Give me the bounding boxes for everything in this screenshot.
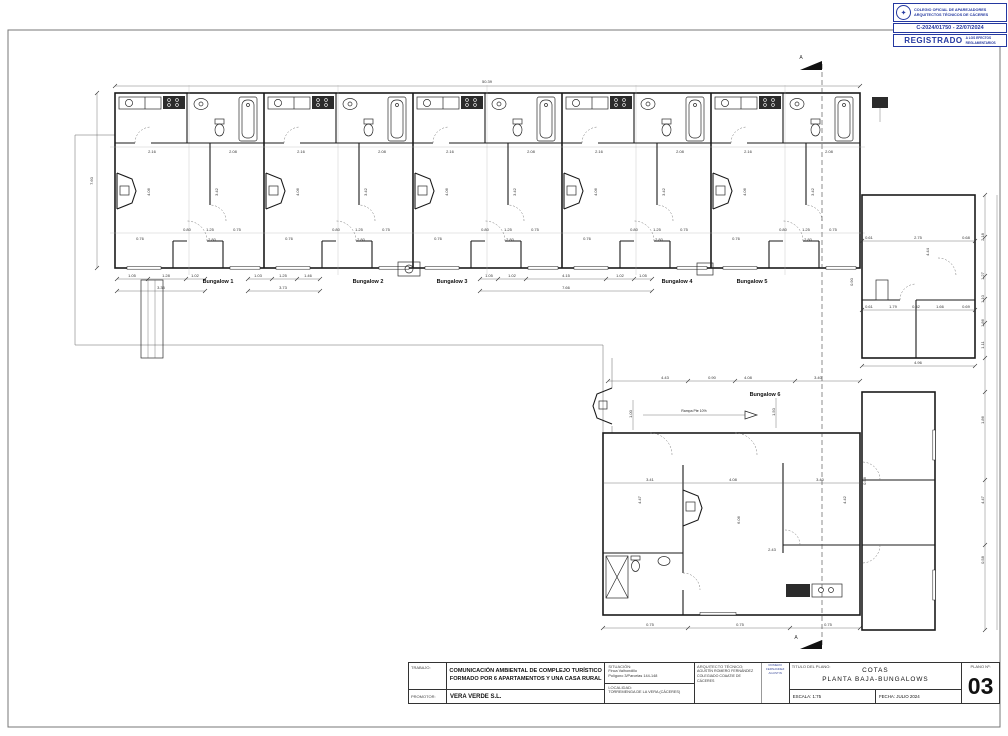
stamp-registry-number: C-2024/01750 - 22/07/2024 xyxy=(893,23,1007,33)
svg-text:1.02: 1.02 xyxy=(191,273,200,278)
svg-text:2.43: 2.43 xyxy=(768,547,777,552)
svg-text:4.43: 4.43 xyxy=(661,375,670,380)
section-letter-top: A xyxy=(799,55,803,61)
stamp-registered: REGISTRADO xyxy=(904,36,962,45)
svg-text:2.16: 2.16 xyxy=(595,149,604,154)
dim-label: 7.60 xyxy=(89,176,94,185)
svg-text:1.46: 1.46 xyxy=(304,273,313,278)
stamp-org-line1: COLEGIO OFICIAL DE APAREJADORES xyxy=(914,8,988,13)
project-title-line2: FORMADO POR 6 APARTAMENTOS Y UNA CASA RU… xyxy=(450,676,602,684)
svg-text:0.69: 0.69 xyxy=(962,304,971,309)
svg-text:0.80: 0.80 xyxy=(779,227,788,232)
svg-text:4.44: 4.44 xyxy=(925,247,930,256)
svg-text:0.58: 0.58 xyxy=(980,555,985,564)
promotor-label: PROMOTOR: xyxy=(411,694,436,699)
sheet-border xyxy=(8,30,1000,727)
svg-text:4.42: 4.42 xyxy=(842,495,847,504)
svg-text:1.10: 1.10 xyxy=(980,294,985,303)
firma-line3: AGUSTIN xyxy=(763,672,788,676)
college-crest-icon: ✦ xyxy=(896,5,911,20)
sheet-title-line1: COTAS xyxy=(862,667,889,676)
svg-text:0.80: 0.80 xyxy=(183,227,192,232)
situacion-line2: Polígono 3/Parcelas 144-148 xyxy=(608,674,691,679)
section-arrow-bottom xyxy=(800,640,822,649)
svg-text:0.68: 0.68 xyxy=(962,235,971,240)
svg-text:2.16: 2.16 xyxy=(744,149,753,154)
svg-text:1.79: 1.79 xyxy=(889,304,898,309)
svg-text:2.08: 2.08 xyxy=(229,149,238,154)
svg-text:0.76: 0.76 xyxy=(732,236,741,241)
arquitecto-line3: CÁCERES xyxy=(697,679,759,684)
bungalow-1-label: Bungalow 1 xyxy=(203,279,234,285)
svg-text:2.16: 2.16 xyxy=(297,149,306,154)
svg-text:0.76: 0.76 xyxy=(434,236,443,241)
titleblock-sheet-title: TITULO DEL PLANO: COTAS PLANTA BAJA-BUNG… xyxy=(790,663,962,703)
svg-text:2.08: 2.08 xyxy=(825,149,834,154)
svg-text:0.80: 0.80 xyxy=(630,227,639,232)
svg-text:2.80: 2.80 xyxy=(655,237,664,242)
sheet-title-line2: PLANTA BAJA-BUNGALOWS xyxy=(822,676,928,685)
titleblock-architect: ARQUITECTO TÉCNICO: AGUSTÍN ROMERO FERNÁ… xyxy=(695,663,790,703)
svg-text:1.00: 1.00 xyxy=(628,409,633,418)
svg-text:2.80: 2.80 xyxy=(506,237,515,242)
digital-signature: ROMERO FERNANDEZ AGUSTIN xyxy=(761,663,789,703)
row-dimension-chains: 1.05 1.28 1.02 3.35 1.03 1.25 1.46 3.73 … xyxy=(115,273,654,293)
svg-text:1.27: 1.27 xyxy=(980,271,985,280)
svg-text:3.42: 3.42 xyxy=(512,187,517,196)
section-line-a: A A xyxy=(794,55,822,649)
svg-text:1.05: 1.05 xyxy=(639,273,648,278)
bungalow-modules xyxy=(115,85,860,275)
bungalow-3-label: Bungalow 3 xyxy=(437,279,468,285)
svg-text:0.61: 0.61 xyxy=(865,304,874,309)
bungalow-6-label: Bungalow 6 xyxy=(750,392,781,398)
svg-text:1.05: 1.05 xyxy=(128,273,137,278)
svg-text:2.08: 2.08 xyxy=(378,149,387,154)
svg-text:1.50: 1.50 xyxy=(771,407,776,416)
utility-box xyxy=(872,97,888,108)
svg-text:0.75: 0.75 xyxy=(382,227,391,232)
svg-text:1.25: 1.25 xyxy=(355,227,364,232)
svg-text:3.35: 3.35 xyxy=(157,285,166,290)
svg-text:6.06: 6.06 xyxy=(736,515,741,524)
svg-text:2.80: 2.80 xyxy=(357,237,366,242)
svg-text:1.05: 1.05 xyxy=(485,273,494,278)
svg-text:1.86: 1.86 xyxy=(980,415,985,424)
right-dimension-chain: 2.18 1.27 1.10 1.86 1.11 1.86 4.47 0.58 xyxy=(980,193,997,632)
svg-text:4.08: 4.08 xyxy=(729,477,738,482)
svg-text:4.06: 4.06 xyxy=(295,187,300,196)
svg-text:0.75: 0.75 xyxy=(680,227,689,232)
svg-text:3.40: 3.40 xyxy=(816,477,825,482)
svg-text:3.42: 3.42 xyxy=(363,187,368,196)
titleblock-location: SITUACIÓN: Finca Valhondillo Polígono 3/… xyxy=(605,663,695,703)
svg-text:1.66: 1.66 xyxy=(936,304,945,309)
svg-text:3.40: 3.40 xyxy=(814,375,823,380)
svg-text:1.25: 1.25 xyxy=(279,273,288,278)
sheet-number: 03 xyxy=(968,669,994,703)
svg-text:0.75: 0.75 xyxy=(829,227,838,232)
svg-text:0.90: 0.90 xyxy=(708,375,717,380)
right-lower-building xyxy=(862,392,935,630)
svg-text:2.08: 2.08 xyxy=(527,149,536,154)
svg-text:1.86: 1.86 xyxy=(980,318,985,327)
promotor-name: VERA VERDE S.L. xyxy=(447,694,604,700)
svg-text:4.06: 4.06 xyxy=(444,187,449,196)
svg-text:2.80: 2.80 xyxy=(208,237,217,242)
site-outline xyxy=(75,135,612,433)
svg-text:0.75: 0.75 xyxy=(646,622,655,627)
svg-text:4.06: 4.06 xyxy=(146,187,151,196)
svg-text:2.75: 2.75 xyxy=(914,235,923,240)
bungalow-row-plan: 50.39 7.60 2.16 2.08 4.06 3.42 0.80 1.25 xyxy=(89,79,888,293)
svg-text:0.76: 0.76 xyxy=(136,236,145,241)
project-title-line1: COMUNICACIÓN AMBIENTAL DE COMPLEJO TURÍS… xyxy=(449,668,601,676)
svg-text:0.52: 0.52 xyxy=(912,304,921,309)
svg-text:7.66: 7.66 xyxy=(562,285,571,290)
right-upper-building: 0.61 2.75 0.68 4.44 0.61 1.79 0.52 1.66 … xyxy=(849,195,977,368)
svg-text:4.47: 4.47 xyxy=(980,495,985,504)
floor-plan-drawing: 50.39 7.60 2.16 2.08 4.06 3.42 0.80 1.25 xyxy=(0,0,1008,736)
svg-text:0.75: 0.75 xyxy=(233,227,242,232)
svg-text:4.06: 4.06 xyxy=(593,187,598,196)
svg-text:2.16: 2.16 xyxy=(148,149,157,154)
title-block: TRABAJO: COMUNICACIÓN AMBIENTAL DE COMPL… xyxy=(408,662,1000,704)
stamp-note-line2: REGLAMENTARIOS xyxy=(966,41,996,45)
svg-text:0.76: 0.76 xyxy=(583,236,592,241)
svg-text:4.96: 4.96 xyxy=(914,360,923,365)
bungalow-5-label: Bungalow 5 xyxy=(737,279,768,285)
svg-text:1.11: 1.11 xyxy=(980,340,985,348)
svg-text:0.75: 0.75 xyxy=(736,622,745,627)
svg-text:2.08: 2.08 xyxy=(676,149,685,154)
svg-text:2.80: 2.80 xyxy=(804,237,813,242)
svg-text:1.25: 1.25 xyxy=(653,227,662,232)
svg-text:1.03: 1.03 xyxy=(254,273,263,278)
bungalow-2-label: Bungalow 2 xyxy=(353,279,384,285)
localidad-value: TORREMENGA DE LA VERA (CÁCERES) xyxy=(608,690,691,695)
svg-text:2.16: 2.16 xyxy=(446,149,455,154)
bungalow-4-label: Bungalow 4 xyxy=(662,279,694,285)
svg-text:1.25: 1.25 xyxy=(802,227,811,232)
svg-text:3.42: 3.42 xyxy=(214,187,219,196)
titleblock-project: TRABAJO: COMUNICACIÓN AMBIENTAL DE COMPL… xyxy=(409,663,605,703)
svg-text:0.75: 0.75 xyxy=(824,622,833,627)
svg-text:1.28: 1.28 xyxy=(162,273,171,278)
dim-label: 50.39 xyxy=(482,79,493,84)
trabajo-label: TRABAJO: xyxy=(411,665,431,670)
bungalow-6-plan: Bungalow 6 Rampa Pte 10% 1.00 1.50 4.43 … xyxy=(601,375,867,630)
scale-value: ESCALA: 1:75 xyxy=(790,690,875,703)
svg-text:3.42: 3.42 xyxy=(810,187,815,196)
svg-text:2.18: 2.18 xyxy=(980,232,985,241)
svg-text:0.80: 0.80 xyxy=(481,227,490,232)
svg-text:0.61: 0.61 xyxy=(865,235,874,240)
drawing-sheet: 50.39 7.60 2.16 2.08 4.06 3.42 0.80 1.25 xyxy=(0,0,1008,736)
svg-text:3.42: 3.42 xyxy=(661,187,666,196)
svg-text:1.25: 1.25 xyxy=(206,227,215,232)
svg-text:0.90: 0.90 xyxy=(849,277,854,286)
svg-text:4.47: 4.47 xyxy=(637,495,642,504)
stamp-org-line2: ARQUITECTOS TÉCNICOS DE CÁCERES xyxy=(914,13,988,18)
svg-text:3.73: 3.73 xyxy=(279,285,288,290)
svg-text:0.75: 0.75 xyxy=(531,227,540,232)
section-letter-bottom: A xyxy=(794,635,798,641)
date-value: FECHA: JULIO 2024 xyxy=(875,690,961,703)
svg-text:4.08: 4.08 xyxy=(744,375,753,380)
titulo-label: TITULO DEL PLANO: xyxy=(792,664,831,669)
svg-text:1.25: 1.25 xyxy=(504,227,513,232)
titleblock-sheet-number: PLANO Nº: 03 xyxy=(962,663,999,703)
svg-text:1.02: 1.02 xyxy=(616,273,625,278)
svg-text:0.80: 0.80 xyxy=(332,227,341,232)
svg-text:3.41: 3.41 xyxy=(646,477,655,482)
svg-text:4.06: 4.06 xyxy=(742,187,747,196)
svg-text:1.02: 1.02 xyxy=(508,273,517,278)
ramp-annotation: Rampa Pte 10% xyxy=(681,409,707,413)
svg-text:4.15: 4.15 xyxy=(562,273,571,278)
registry-stamp: ✦ COLEGIO OFICIAL DE APAREJADORES ARQUIT… xyxy=(893,3,1007,47)
svg-text:0.76: 0.76 xyxy=(285,236,294,241)
section-arrow-top xyxy=(800,61,822,70)
